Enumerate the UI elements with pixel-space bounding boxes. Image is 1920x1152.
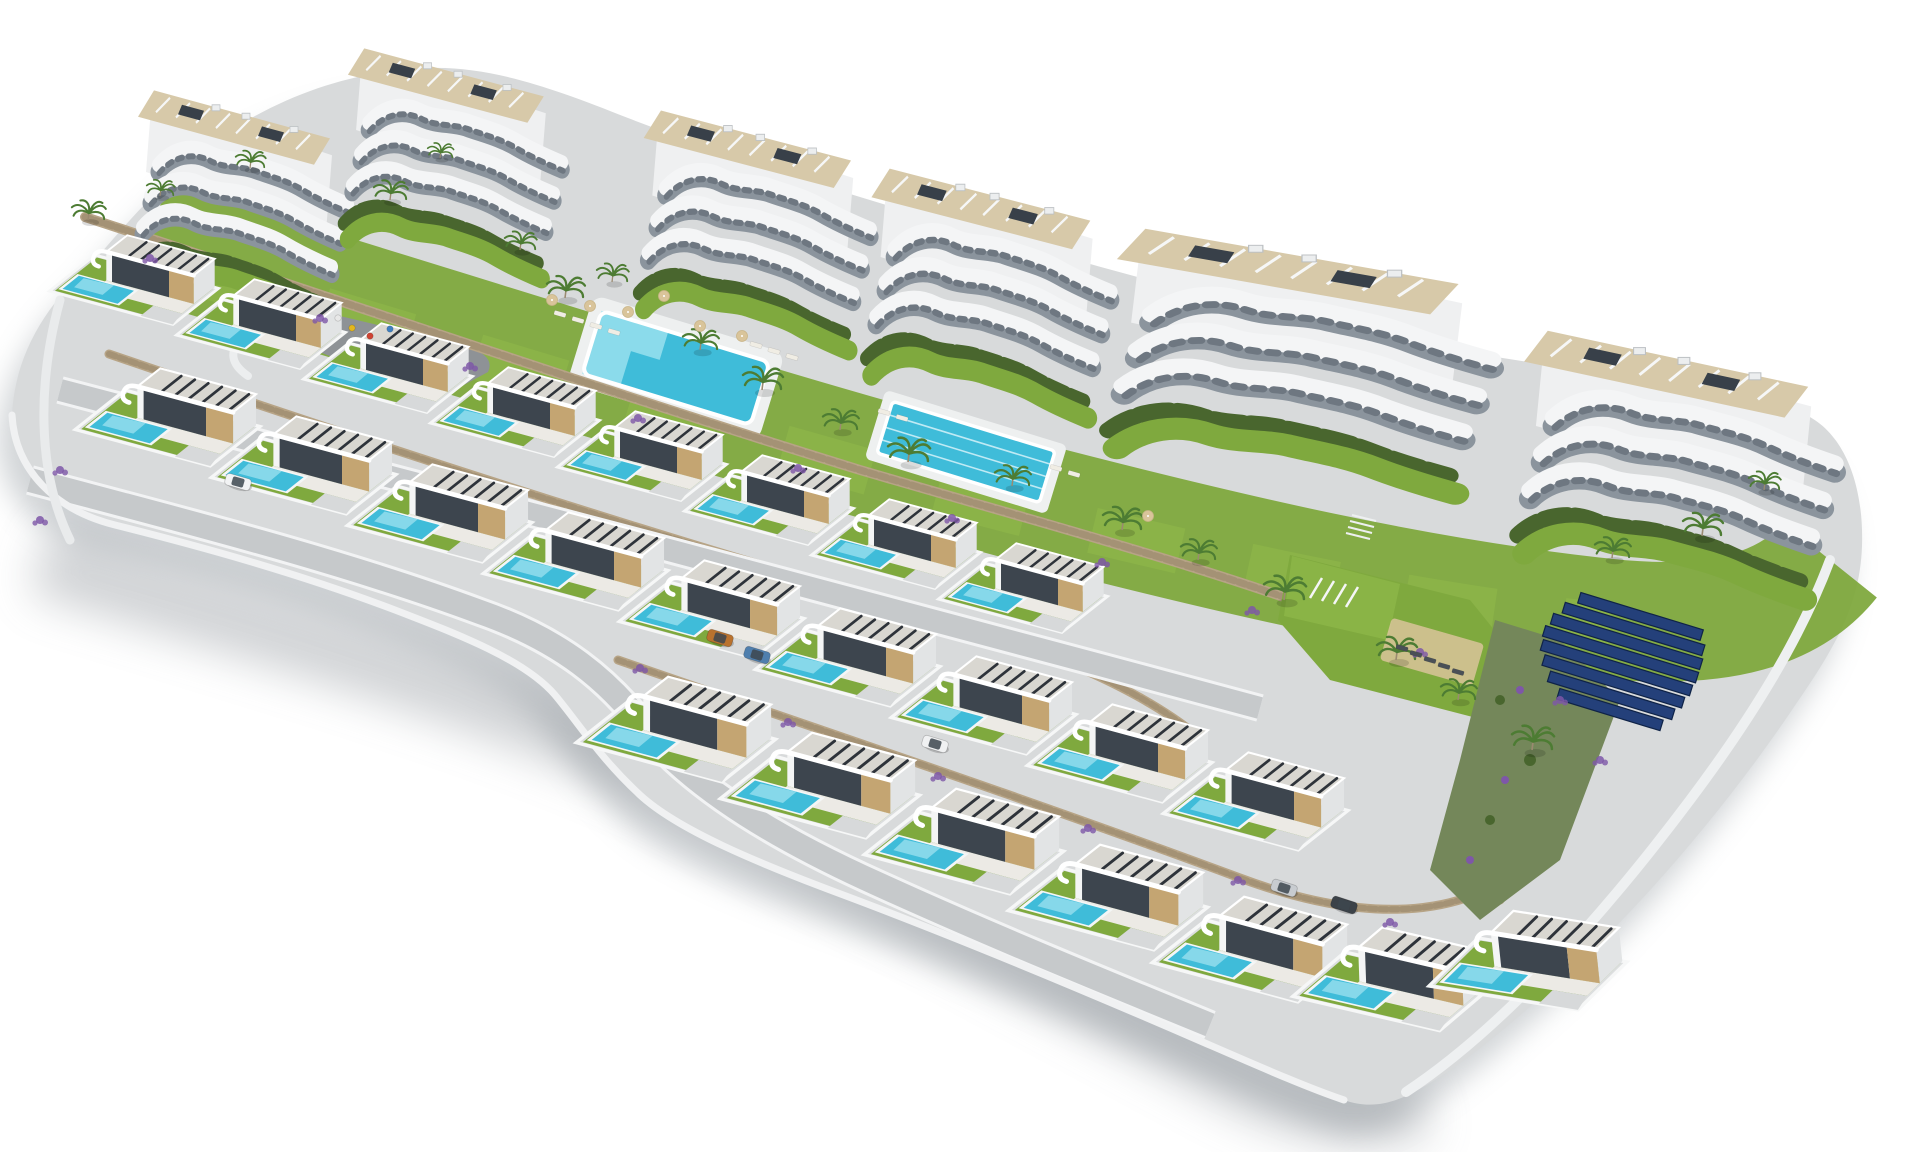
playground-toy — [367, 333, 373, 339]
parasol — [623, 307, 634, 318]
parasol — [547, 295, 558, 306]
parasol — [737, 331, 748, 342]
playground-toy — [387, 326, 393, 332]
parasol — [695, 321, 706, 332]
playground-toy — [349, 325, 355, 331]
parasol — [585, 301, 596, 312]
render-canvas — [0, 0, 1920, 1152]
playground-toy — [335, 315, 341, 321]
parasol — [659, 291, 670, 302]
parasol — [1143, 511, 1154, 522]
site-plan-render — [0, 0, 1920, 1152]
